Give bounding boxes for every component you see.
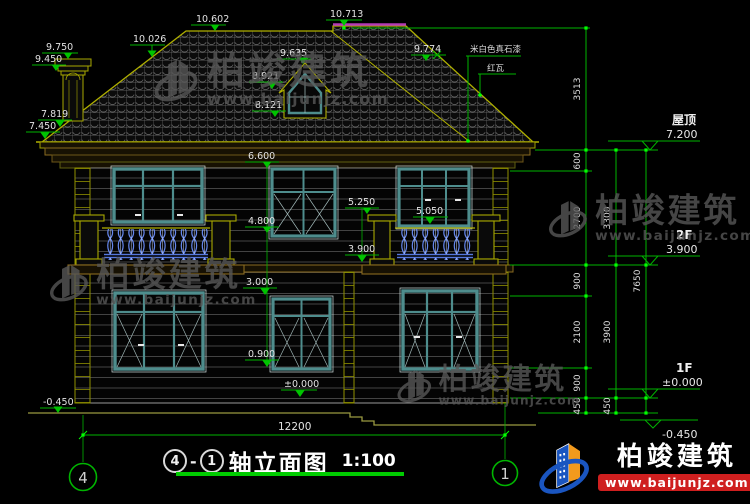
title-axis-circle-left: 4: [163, 449, 187, 473]
rdim-900a: 900: [573, 272, 583, 289]
level-1f: 1F ±0.000: [608, 361, 703, 398]
level-1f-value: ±0.000: [662, 376, 703, 389]
dim-0000: ±0.000: [284, 379, 319, 390]
watermark-site: www.baijunjz.com: [438, 395, 580, 407]
watermark-site: www.baijunjz.com: [595, 229, 750, 243]
dim-total-width: 12200: [278, 421, 311, 433]
watermark-logo-icon: [394, 365, 435, 406]
brand-site: www.baijunjz.com: [598, 474, 750, 491]
title-underline: [176, 472, 404, 476]
title-dash: -: [190, 452, 197, 471]
dim-5050: 5.050: [416, 206, 443, 217]
level-2f-value: 3.900: [666, 243, 698, 256]
watermark-bottom: 柏竣建筑 www.baijunjz.com: [394, 364, 581, 407]
rdim-7650: 7650: [633, 269, 643, 292]
dim-9450: 9.450: [35, 54, 62, 65]
watermark-top: 柏竣建筑 www.baijunjz.com: [150, 52, 389, 108]
watermark-logo-icon: [150, 54, 202, 106]
dim-neg450-left: -0.450: [43, 397, 74, 408]
dim-9774: 9.774: [414, 44, 441, 55]
level-roof-label: 屋顶: [672, 113, 696, 127]
watermark-name: 柏竣建筑: [438, 364, 580, 394]
watermark-site: www.baijunjz.com: [96, 293, 256, 307]
title-scale: 1:100: [342, 451, 396, 471]
level-roof-value: 7.200: [666, 128, 698, 141]
level-1f-label: 1F: [676, 361, 693, 375]
dim-9750: 9.750: [46, 42, 73, 53]
axis-bubble-right-number: 1: [500, 465, 510, 483]
eave-cornice: [40, 142, 535, 168]
watermark-right: 柏竣建筑 www.baijunjz.com: [545, 194, 750, 243]
rdim-2100: 2100: [573, 320, 583, 343]
level-roof: 屋顶 7.200: [608, 113, 700, 150]
axis-bubble-left-number: 4: [78, 469, 88, 487]
axis-bubble-right: 1: [493, 461, 518, 486]
rdim-600: 600: [573, 152, 583, 169]
brand-logo-icon: [538, 436, 594, 498]
watermark-name: 柏竣建筑: [96, 258, 256, 291]
watermark-site: www.baijunjz.com: [207, 92, 389, 108]
watermark-name: 柏竣建筑: [207, 52, 389, 90]
cad-elevation-sheet: 10.602 10.713 10.026 9.750 9.450 9.635 8…: [0, 0, 750, 504]
watermark-name: 柏竣建筑: [595, 194, 750, 227]
dim-10602: 10.602: [196, 14, 229, 25]
rdim-3900: 3900: [603, 320, 613, 343]
dim-10026: 10.026: [133, 34, 166, 45]
dim-4800: 4.800: [248, 216, 275, 227]
dim-5250: 5.250: [348, 197, 375, 208]
dim-6600: 6.600: [248, 151, 275, 162]
dim-7450: 7.450: [29, 121, 56, 132]
balusters: [397, 229, 473, 260]
watermark-logo-icon: [46, 260, 92, 306]
title-axis-circle-right: 1: [200, 449, 224, 473]
dim-0900: 0.900: [248, 349, 275, 360]
note-stone-paint: 米白色真石漆: [470, 44, 522, 55]
brand-logo: 柏竣建筑 www.baijunjz.com: [538, 436, 750, 498]
rdim-450b: 450: [603, 397, 613, 414]
watermark-logo-icon: [545, 196, 591, 242]
axis-bubble-left: 4: [70, 464, 97, 491]
dim-3900: 3.900: [348, 244, 375, 255]
brand-name: 柏竣建筑: [617, 443, 737, 473]
rdim-3513: 3513: [573, 78, 583, 101]
note-red-tile: 红瓦: [487, 63, 505, 74]
dim-10713: 10.713: [330, 9, 363, 20]
dim-7819: 7.819: [41, 109, 68, 120]
watermark-left: 柏竣建筑 www.baijunjz.com: [46, 258, 257, 307]
